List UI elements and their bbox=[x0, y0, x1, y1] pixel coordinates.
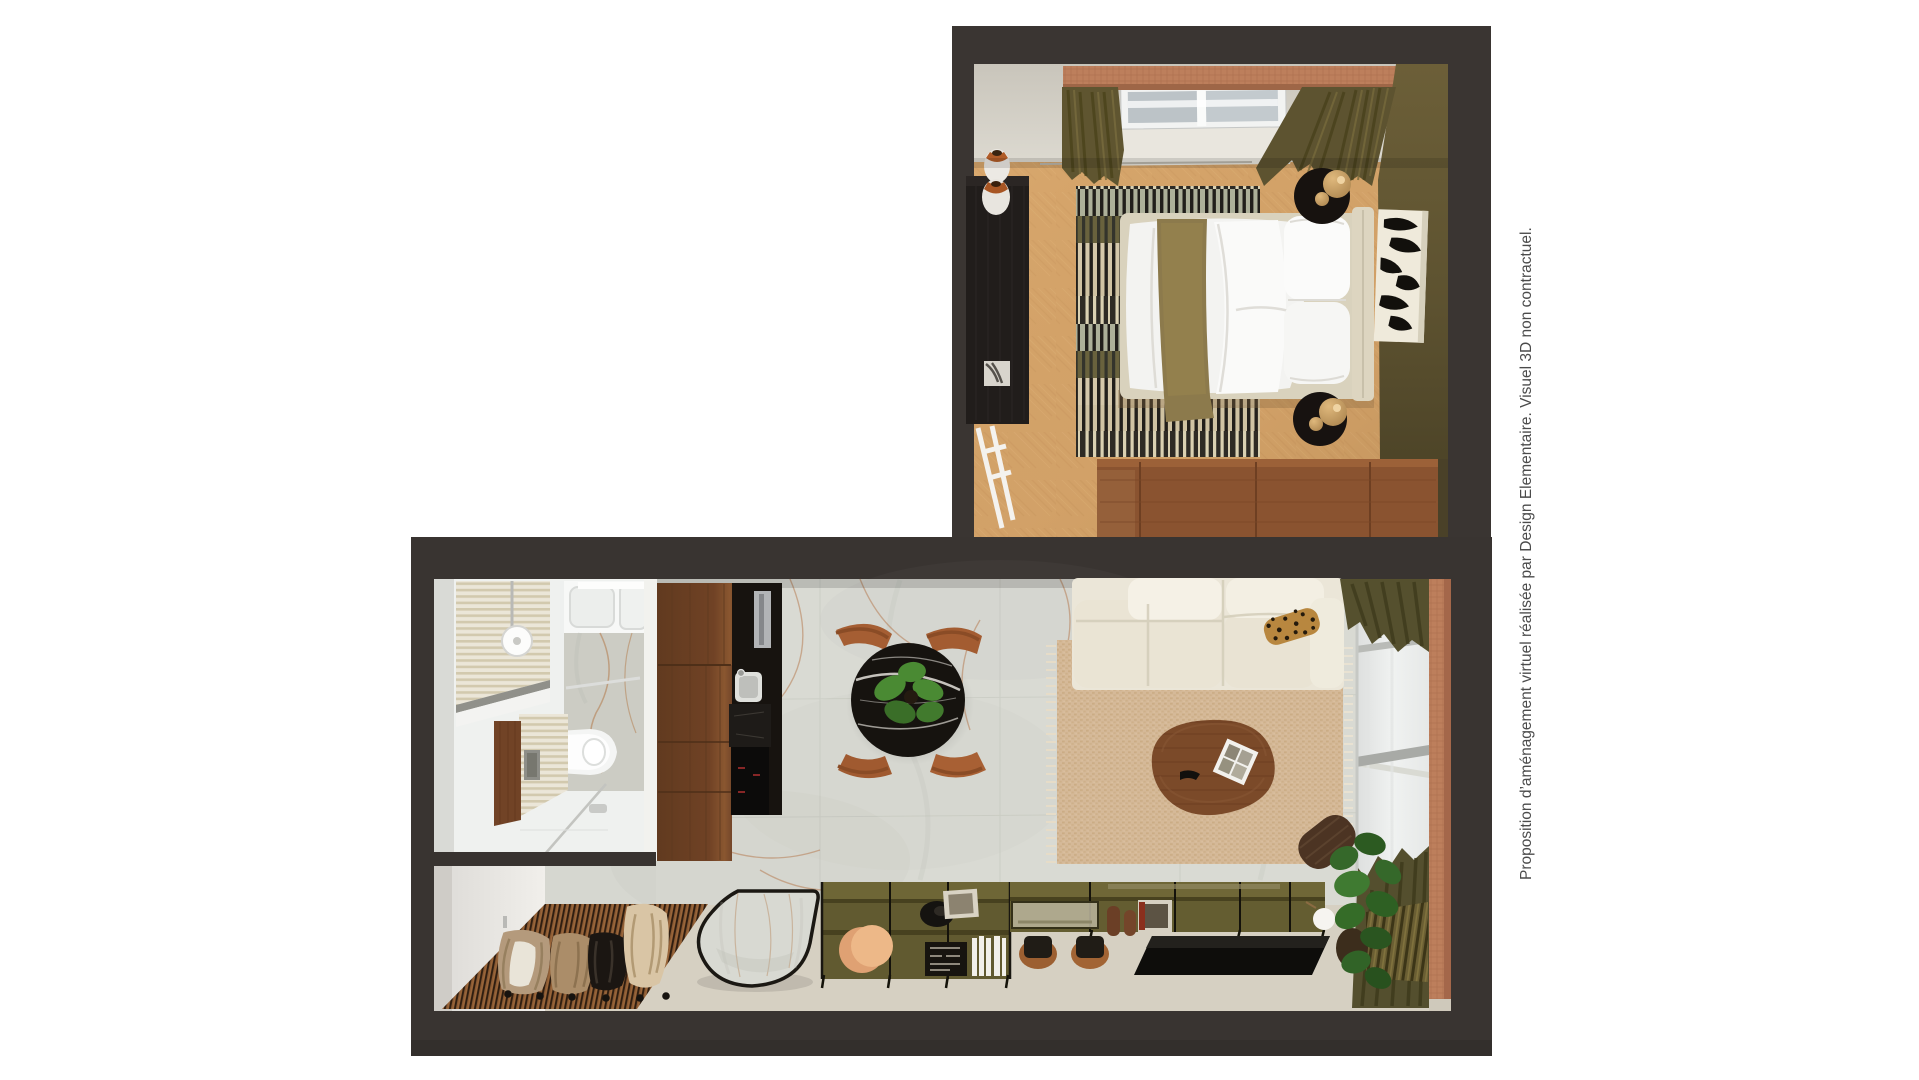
svg-text:Proposition d’aménagement virt: Proposition d’aménagement virtuel réalis… bbox=[1518, 227, 1535, 880]
